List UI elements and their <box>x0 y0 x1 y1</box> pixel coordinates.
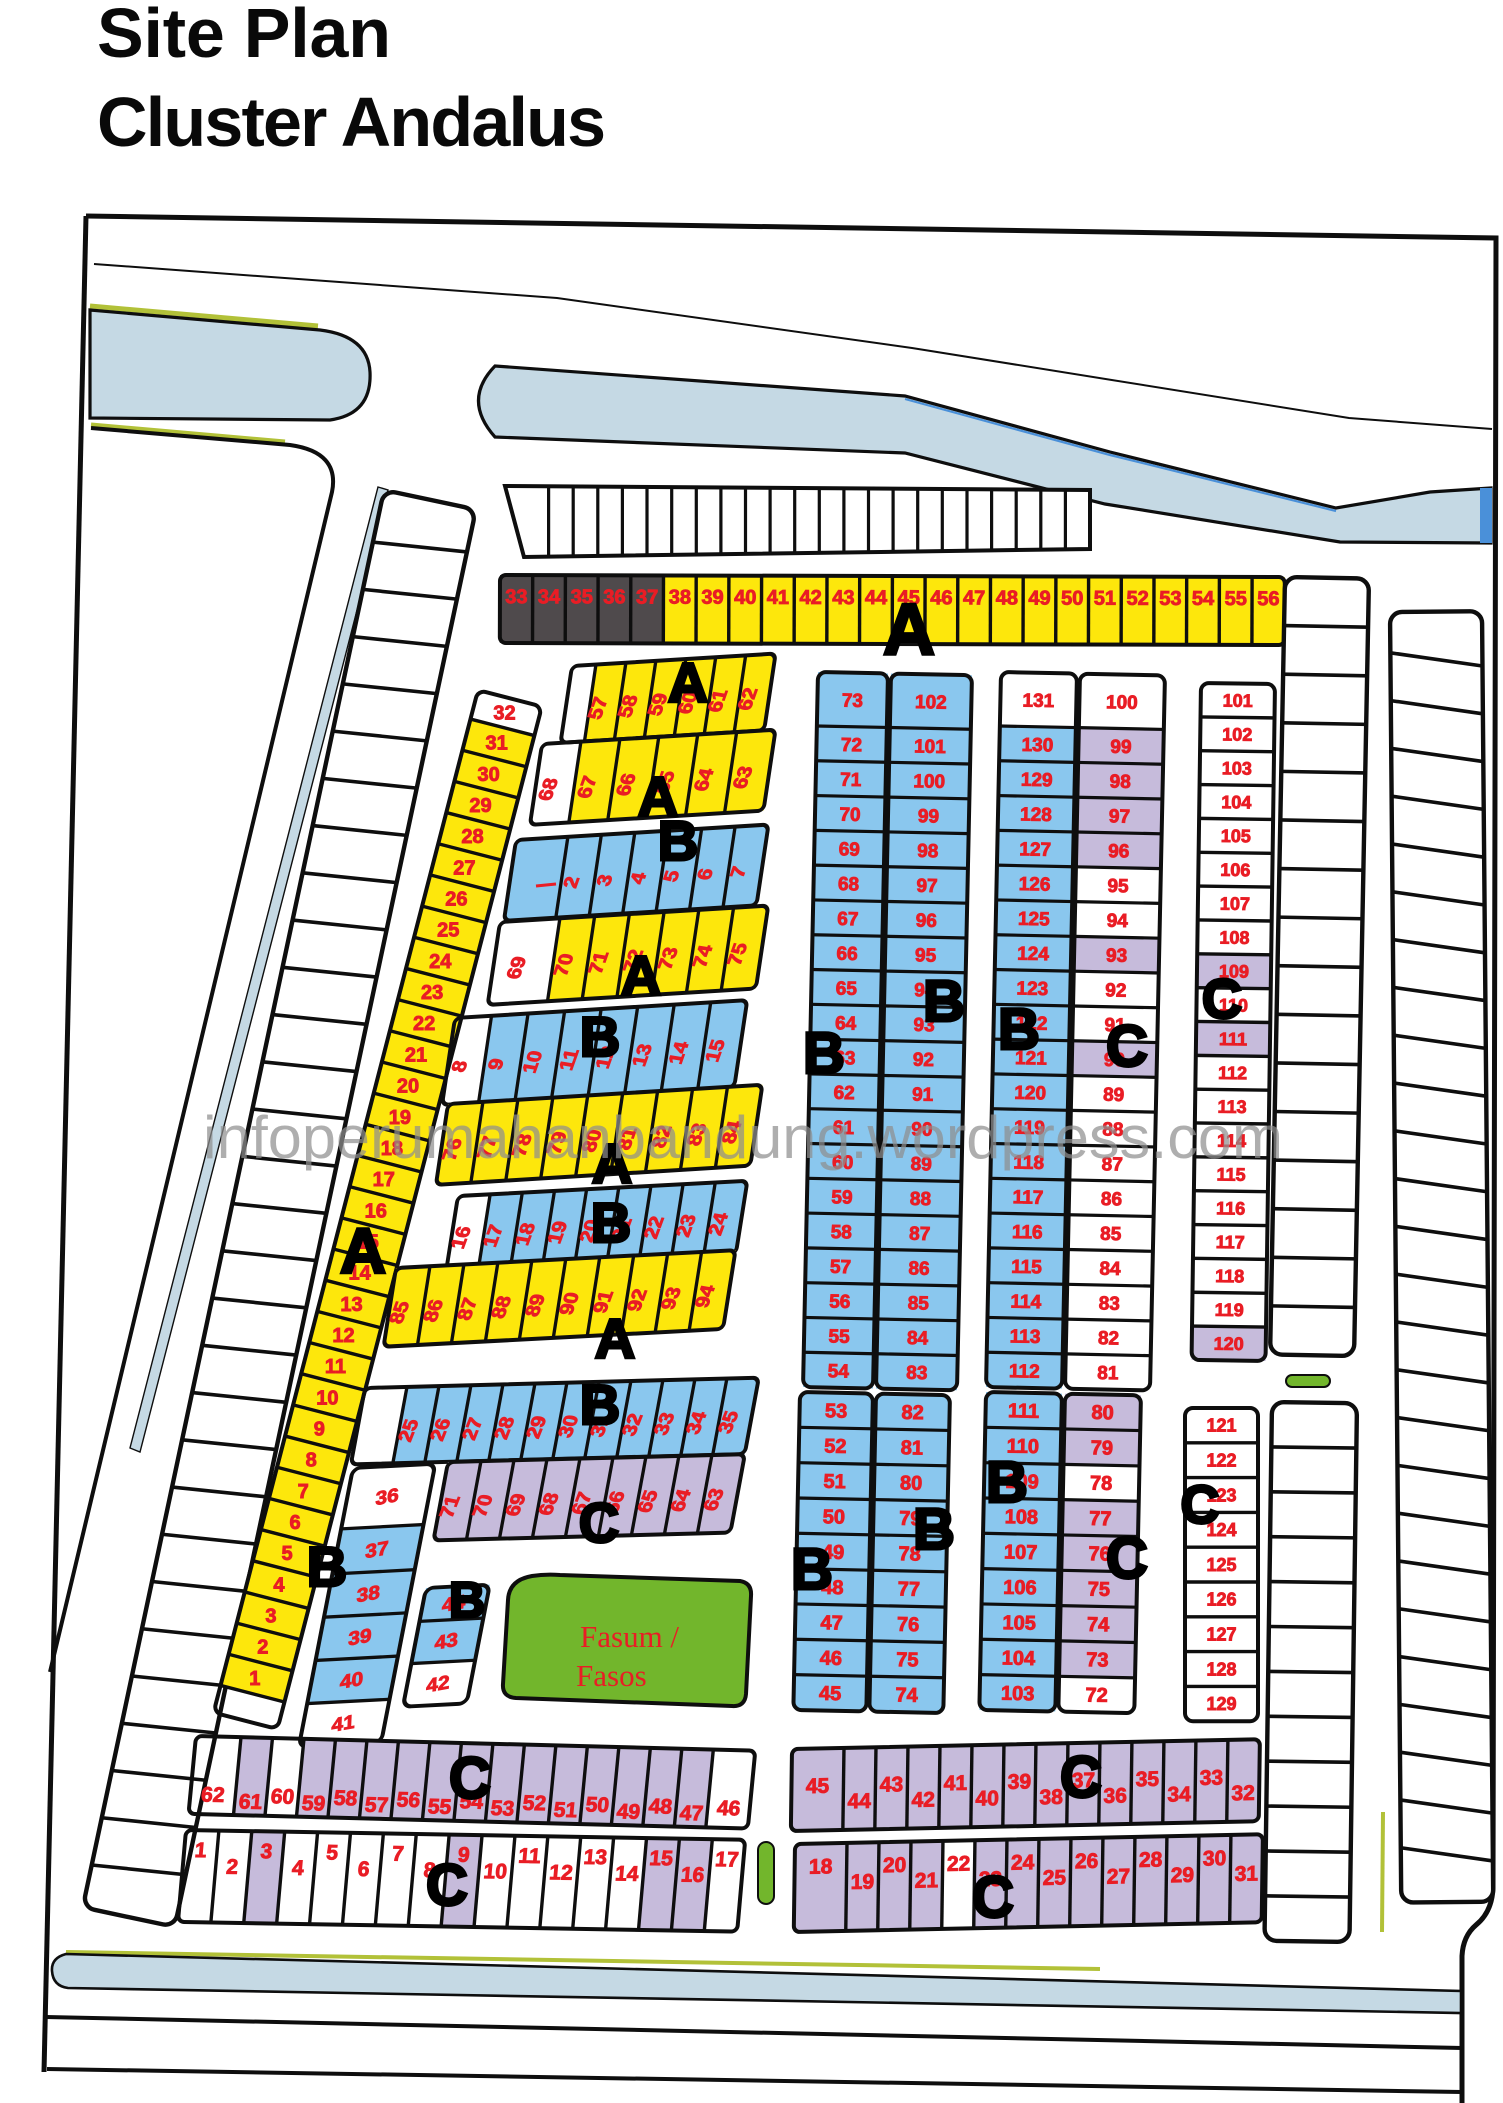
svg-text:80: 80 <box>1091 1402 1114 1424</box>
svg-text:58: 58 <box>333 1787 359 1811</box>
svg-text:1: 1 <box>194 1839 208 1862</box>
svg-text:27: 27 <box>453 857 475 879</box>
svg-text:66: 66 <box>836 944 858 965</box>
svg-text:101: 101 <box>1223 691 1253 711</box>
svg-text:45: 45 <box>806 1775 830 1799</box>
svg-text:69: 69 <box>838 839 860 860</box>
svg-text:9: 9 <box>314 1419 325 1441</box>
svg-text:22: 22 <box>413 1013 435 1035</box>
svg-text:129: 129 <box>1206 1694 1236 1714</box>
svg-text:62: 62 <box>200 1783 226 1807</box>
svg-text:infoperumahanbandung.wordpress: infoperumahanbandung.wordpress.com <box>203 1104 1283 1171</box>
svg-text:77: 77 <box>898 1578 921 1600</box>
svg-text:126: 126 <box>1018 874 1050 896</box>
svg-text:21: 21 <box>915 1869 939 1893</box>
svg-text:A: A <box>883 590 935 670</box>
svg-text:94: 94 <box>1107 911 1129 932</box>
svg-text:5: 5 <box>281 1543 292 1565</box>
svg-text:83: 83 <box>1098 1293 1120 1314</box>
svg-text:98: 98 <box>917 841 939 862</box>
svg-text:39: 39 <box>1008 1770 1032 1793</box>
svg-text:67: 67 <box>837 909 859 930</box>
svg-text:B: B <box>658 809 698 872</box>
svg-text:43: 43 <box>880 1773 904 1796</box>
svg-text:43: 43 <box>832 587 854 609</box>
svg-text:C: C <box>1060 1745 1102 1810</box>
svg-text:54: 54 <box>828 1361 850 1382</box>
svg-text:126: 126 <box>1206 1590 1236 1610</box>
svg-text:93: 93 <box>1106 945 1128 966</box>
svg-text:117: 117 <box>1216 1232 1245 1252</box>
svg-text:53: 53 <box>490 1797 516 1821</box>
svg-text:B: B <box>791 1537 833 1602</box>
svg-text:127: 127 <box>1206 1625 1236 1645</box>
svg-text:125: 125 <box>1018 909 1051 931</box>
svg-text:106: 106 <box>1220 860 1250 880</box>
svg-text:73: 73 <box>842 691 864 712</box>
svg-text:C: C <box>1181 1475 1220 1535</box>
svg-text:85: 85 <box>907 1293 929 1314</box>
svg-text:122: 122 <box>1206 1451 1236 1471</box>
svg-text:72: 72 <box>841 735 863 756</box>
svg-text:62: 62 <box>833 1083 855 1104</box>
svg-text:86: 86 <box>1101 1189 1123 1210</box>
svg-text:47: 47 <box>820 1612 843 1634</box>
svg-text:75: 75 <box>896 1649 919 1671</box>
svg-text:24: 24 <box>1011 1851 1035 1875</box>
svg-text:91: 91 <box>912 1084 934 1105</box>
svg-text:34: 34 <box>538 586 561 608</box>
svg-text:13: 13 <box>340 1294 362 1316</box>
svg-text:46: 46 <box>820 1647 843 1669</box>
svg-text:36: 36 <box>375 1485 399 1510</box>
svg-text:54: 54 <box>1192 588 1215 610</box>
svg-text:52: 52 <box>1126 588 1148 610</box>
svg-text:114: 114 <box>1010 1292 1042 1314</box>
svg-text:104: 104 <box>1221 792 1251 812</box>
svg-text:B: B <box>307 1535 347 1598</box>
svg-text:68: 68 <box>838 874 860 895</box>
svg-text:36: 36 <box>1103 1784 1127 1807</box>
svg-text:87: 87 <box>909 1224 931 1245</box>
svg-text:B: B <box>923 969 965 1034</box>
svg-text:74: 74 <box>895 1684 919 1706</box>
svg-text:51: 51 <box>1094 588 1116 610</box>
svg-text:52: 52 <box>522 1792 548 1816</box>
svg-text:30: 30 <box>477 764 499 786</box>
svg-text:102: 102 <box>1222 724 1252 744</box>
svg-text:128: 128 <box>1206 1659 1236 1679</box>
svg-text:65: 65 <box>836 978 858 999</box>
svg-text:105: 105 <box>1002 1612 1036 1635</box>
svg-text:16: 16 <box>680 1864 705 1887</box>
svg-text:22: 22 <box>947 1852 971 1875</box>
svg-text:99: 99 <box>918 806 940 827</box>
svg-text:32: 32 <box>1231 1782 1255 1805</box>
svg-text:79: 79 <box>1090 1437 1113 1459</box>
svg-text:44: 44 <box>847 1790 871 1814</box>
svg-text:45: 45 <box>819 1683 842 1705</box>
svg-text:B: B <box>449 1572 485 1628</box>
svg-text:82: 82 <box>901 1402 924 1424</box>
svg-text:95: 95 <box>915 945 937 966</box>
svg-text:98: 98 <box>1109 772 1131 793</box>
svg-text:10: 10 <box>316 1387 338 1409</box>
svg-text:107: 107 <box>1004 1541 1038 1564</box>
svg-text:55: 55 <box>828 1326 850 1347</box>
svg-text:30: 30 <box>1203 1847 1227 1870</box>
svg-text:50: 50 <box>1061 588 1083 610</box>
svg-text:70: 70 <box>839 804 861 825</box>
svg-text:40: 40 <box>339 1668 363 1693</box>
svg-text:7: 7 <box>391 1843 405 1866</box>
svg-text:59: 59 <box>301 1792 327 1816</box>
svg-text:101: 101 <box>914 736 947 758</box>
svg-text:116: 116 <box>1012 1222 1043 1244</box>
svg-text:111: 111 <box>1008 1400 1040 1423</box>
svg-text:120: 120 <box>1014 1083 1046 1105</box>
svg-text:119: 119 <box>1215 1300 1244 1320</box>
svg-text:21: 21 <box>405 1044 427 1066</box>
svg-text:130: 130 <box>1021 735 1053 757</box>
svg-text:61: 61 <box>238 1790 264 1814</box>
svg-text:42: 42 <box>426 1672 450 1697</box>
svg-text:97: 97 <box>1109 806 1131 827</box>
svg-text:B: B <box>913 1497 955 1562</box>
svg-text:57: 57 <box>830 1257 852 1278</box>
svg-text:11: 11 <box>325 1356 346 1378</box>
svg-text:28: 28 <box>461 826 483 848</box>
svg-text:12: 12 <box>548 1861 573 1884</box>
svg-text:96: 96 <box>1108 841 1130 862</box>
svg-text:56: 56 <box>829 1292 851 1313</box>
svg-text:47: 47 <box>963 587 985 609</box>
svg-text:32: 32 <box>493 703 515 725</box>
svg-text:81: 81 <box>1097 1363 1119 1384</box>
svg-text:50: 50 <box>823 1506 846 1528</box>
svg-text:C: C <box>1202 967 1242 1030</box>
svg-text:40: 40 <box>734 587 756 609</box>
svg-text:124: 124 <box>1017 944 1050 966</box>
svg-text:59: 59 <box>831 1187 853 1208</box>
svg-text:92: 92 <box>913 1050 935 1071</box>
svg-text:52: 52 <box>824 1436 847 1458</box>
svg-text:120: 120 <box>1214 1334 1244 1354</box>
svg-text:85: 85 <box>1100 1224 1122 1245</box>
svg-text:113: 113 <box>1010 1326 1041 1348</box>
svg-text:72: 72 <box>1085 1684 1108 1706</box>
svg-text:60: 60 <box>270 1785 296 1809</box>
svg-text:51: 51 <box>823 1471 846 1493</box>
svg-text:89: 89 <box>1103 1085 1125 1106</box>
svg-text:42: 42 <box>911 1788 935 1811</box>
svg-text:C: C <box>972 1865 1014 1930</box>
svg-text:20: 20 <box>397 1076 419 1098</box>
svg-text:Fasum /: Fasum / <box>580 1619 679 1654</box>
svg-text:73: 73 <box>1086 1649 1109 1671</box>
svg-text:39: 39 <box>348 1625 372 1650</box>
svg-text:27: 27 <box>1107 1865 1131 1888</box>
svg-text:C: C <box>1106 1014 1148 1079</box>
svg-text:84: 84 <box>907 1328 929 1349</box>
svg-text:42: 42 <box>799 587 821 609</box>
svg-text:36: 36 <box>603 586 625 608</box>
svg-text:121: 121 <box>1206 1416 1236 1436</box>
svg-text:103: 103 <box>1222 758 1252 778</box>
svg-text:C: C <box>579 1491 619 1554</box>
svg-text:43: 43 <box>434 1629 458 1654</box>
svg-text:31: 31 <box>486 733 508 755</box>
svg-text:41: 41 <box>767 587 789 609</box>
svg-text:A: A <box>668 651 708 714</box>
svg-text:105: 105 <box>1221 826 1251 846</box>
svg-text:B: B <box>580 1005 620 1068</box>
svg-text:40: 40 <box>975 1787 999 1810</box>
svg-text:49: 49 <box>1028 587 1050 609</box>
svg-text:71: 71 <box>840 770 862 791</box>
svg-text:C: C <box>1106 1526 1148 1591</box>
svg-text:37: 37 <box>636 586 658 608</box>
svg-text:115: 115 <box>1011 1257 1043 1279</box>
svg-text:112: 112 <box>1009 1361 1040 1383</box>
svg-text:17: 17 <box>373 1169 395 1191</box>
svg-text:Cluster Andalus: Cluster Andalus <box>97 83 606 161</box>
svg-text:7: 7 <box>298 1481 309 1503</box>
svg-text:28: 28 <box>1139 1848 1163 1872</box>
svg-text:53: 53 <box>1159 588 1181 610</box>
svg-text:112: 112 <box>1218 1063 1247 1083</box>
svg-text:B: B <box>591 1191 631 1254</box>
svg-text:4: 4 <box>291 1857 305 1880</box>
svg-text:118: 118 <box>1215 1266 1244 1286</box>
svg-text:56: 56 <box>396 1789 422 1813</box>
svg-text:14: 14 <box>614 1862 640 1885</box>
svg-text:Fasos: Fasos <box>576 1658 647 1693</box>
svg-text:74: 74 <box>1087 1614 1111 1636</box>
svg-text:B: B <box>580 1373 620 1436</box>
svg-text:108: 108 <box>1219 927 1249 947</box>
svg-text:81: 81 <box>900 1437 923 1459</box>
svg-text:97: 97 <box>916 876 938 897</box>
svg-text:35: 35 <box>571 586 593 608</box>
svg-text:103: 103 <box>1001 1683 1035 1706</box>
svg-text:76: 76 <box>897 1614 920 1636</box>
svg-text:20: 20 <box>883 1854 907 1877</box>
svg-text:2: 2 <box>257 1637 268 1659</box>
svg-text:92: 92 <box>1105 980 1127 1001</box>
svg-text:3: 3 <box>265 1606 276 1628</box>
svg-text:107: 107 <box>1220 894 1250 914</box>
svg-text:125: 125 <box>1206 1555 1236 1575</box>
svg-text:41: 41 <box>331 1712 355 1737</box>
svg-text:25: 25 <box>1043 1866 1067 1890</box>
svg-text:6: 6 <box>290 1512 301 1534</box>
svg-text:24: 24 <box>429 951 452 973</box>
svg-text:48: 48 <box>648 1795 674 1819</box>
svg-text:57: 57 <box>364 1794 390 1818</box>
svg-text:48: 48 <box>996 587 1018 609</box>
svg-text:53: 53 <box>825 1400 848 1422</box>
svg-text:38: 38 <box>669 587 691 609</box>
svg-text:B: B <box>986 1450 1028 1515</box>
svg-text:50: 50 <box>585 1793 611 1817</box>
svg-text:100: 100 <box>913 771 945 793</box>
svg-text:12: 12 <box>332 1325 354 1347</box>
svg-text:A: A <box>595 1307 635 1370</box>
svg-text:31: 31 <box>1235 1862 1259 1886</box>
svg-text:128: 128 <box>1020 804 1052 826</box>
svg-text:15: 15 <box>648 1847 674 1870</box>
svg-text:4: 4 <box>273 1574 285 1596</box>
svg-text:25: 25 <box>437 920 459 942</box>
svg-text:35: 35 <box>1136 1768 1160 1792</box>
svg-text:131: 131 <box>1022 690 1055 712</box>
svg-text:95: 95 <box>1107 876 1129 897</box>
svg-text:8: 8 <box>306 1450 317 1472</box>
svg-text:C: C <box>426 1853 468 1918</box>
svg-text:10: 10 <box>483 1860 508 1883</box>
svg-text:99: 99 <box>1110 737 1132 758</box>
svg-text:47: 47 <box>679 1802 705 1826</box>
svg-text:55: 55 <box>1225 588 1247 610</box>
svg-text:39: 39 <box>701 587 723 609</box>
svg-text:3: 3 <box>260 1840 274 1863</box>
svg-text:106: 106 <box>1003 1577 1037 1600</box>
svg-text:26: 26 <box>1075 1850 1099 1873</box>
svg-text:100: 100 <box>1106 692 1138 714</box>
svg-text:2: 2 <box>225 1856 239 1879</box>
svg-text:49: 49 <box>616 1800 642 1824</box>
svg-text:33: 33 <box>1200 1766 1224 1789</box>
svg-text:11: 11 <box>517 1845 542 1868</box>
svg-text:104: 104 <box>1002 1647 1037 1670</box>
svg-text:17: 17 <box>714 1848 739 1871</box>
svg-text:19: 19 <box>851 1870 875 1893</box>
svg-text:33: 33 <box>505 586 527 608</box>
svg-text:129: 129 <box>1021 770 1053 792</box>
svg-text:29: 29 <box>469 795 491 817</box>
svg-text:13: 13 <box>583 1846 608 1869</box>
svg-text:117: 117 <box>1012 1187 1043 1209</box>
svg-text:Site Plan: Site Plan <box>97 0 391 72</box>
svg-text:127: 127 <box>1019 839 1051 861</box>
svg-text:86: 86 <box>908 1258 930 1279</box>
svg-text:29: 29 <box>1171 1864 1195 1887</box>
svg-text:56: 56 <box>1257 588 1279 610</box>
svg-text:C: C <box>449 1746 491 1811</box>
svg-text:46: 46 <box>716 1797 742 1821</box>
svg-text:6: 6 <box>357 1858 371 1881</box>
svg-text:80: 80 <box>900 1472 923 1494</box>
svg-text:84: 84 <box>1099 1259 1121 1280</box>
svg-text:88: 88 <box>910 1189 932 1210</box>
svg-text:78: 78 <box>1090 1473 1113 1495</box>
svg-text:5: 5 <box>325 1841 339 1864</box>
svg-text:18: 18 <box>809 1855 833 1879</box>
svg-text:102: 102 <box>915 692 947 714</box>
svg-text:41: 41 <box>944 1772 968 1796</box>
svg-text:1: 1 <box>249 1668 260 1690</box>
svg-text:26: 26 <box>445 889 467 911</box>
svg-text:51: 51 <box>553 1799 579 1823</box>
svg-text:58: 58 <box>830 1222 852 1243</box>
svg-text:B: B <box>803 1021 845 1086</box>
svg-text:116: 116 <box>1216 1198 1245 1218</box>
svg-text:34: 34 <box>1167 1783 1191 1807</box>
svg-text:B: B <box>998 997 1040 1062</box>
svg-text:A: A <box>621 944 661 1007</box>
svg-text:38: 38 <box>356 1582 380 1607</box>
svg-text:A: A <box>340 1215 386 1287</box>
svg-text:82: 82 <box>1098 1328 1120 1349</box>
svg-text:83: 83 <box>906 1363 928 1384</box>
svg-text:96: 96 <box>916 911 938 932</box>
svg-text:23: 23 <box>421 982 443 1004</box>
svg-text:37: 37 <box>365 1538 389 1563</box>
svg-text:111: 111 <box>1219 1029 1247 1049</box>
